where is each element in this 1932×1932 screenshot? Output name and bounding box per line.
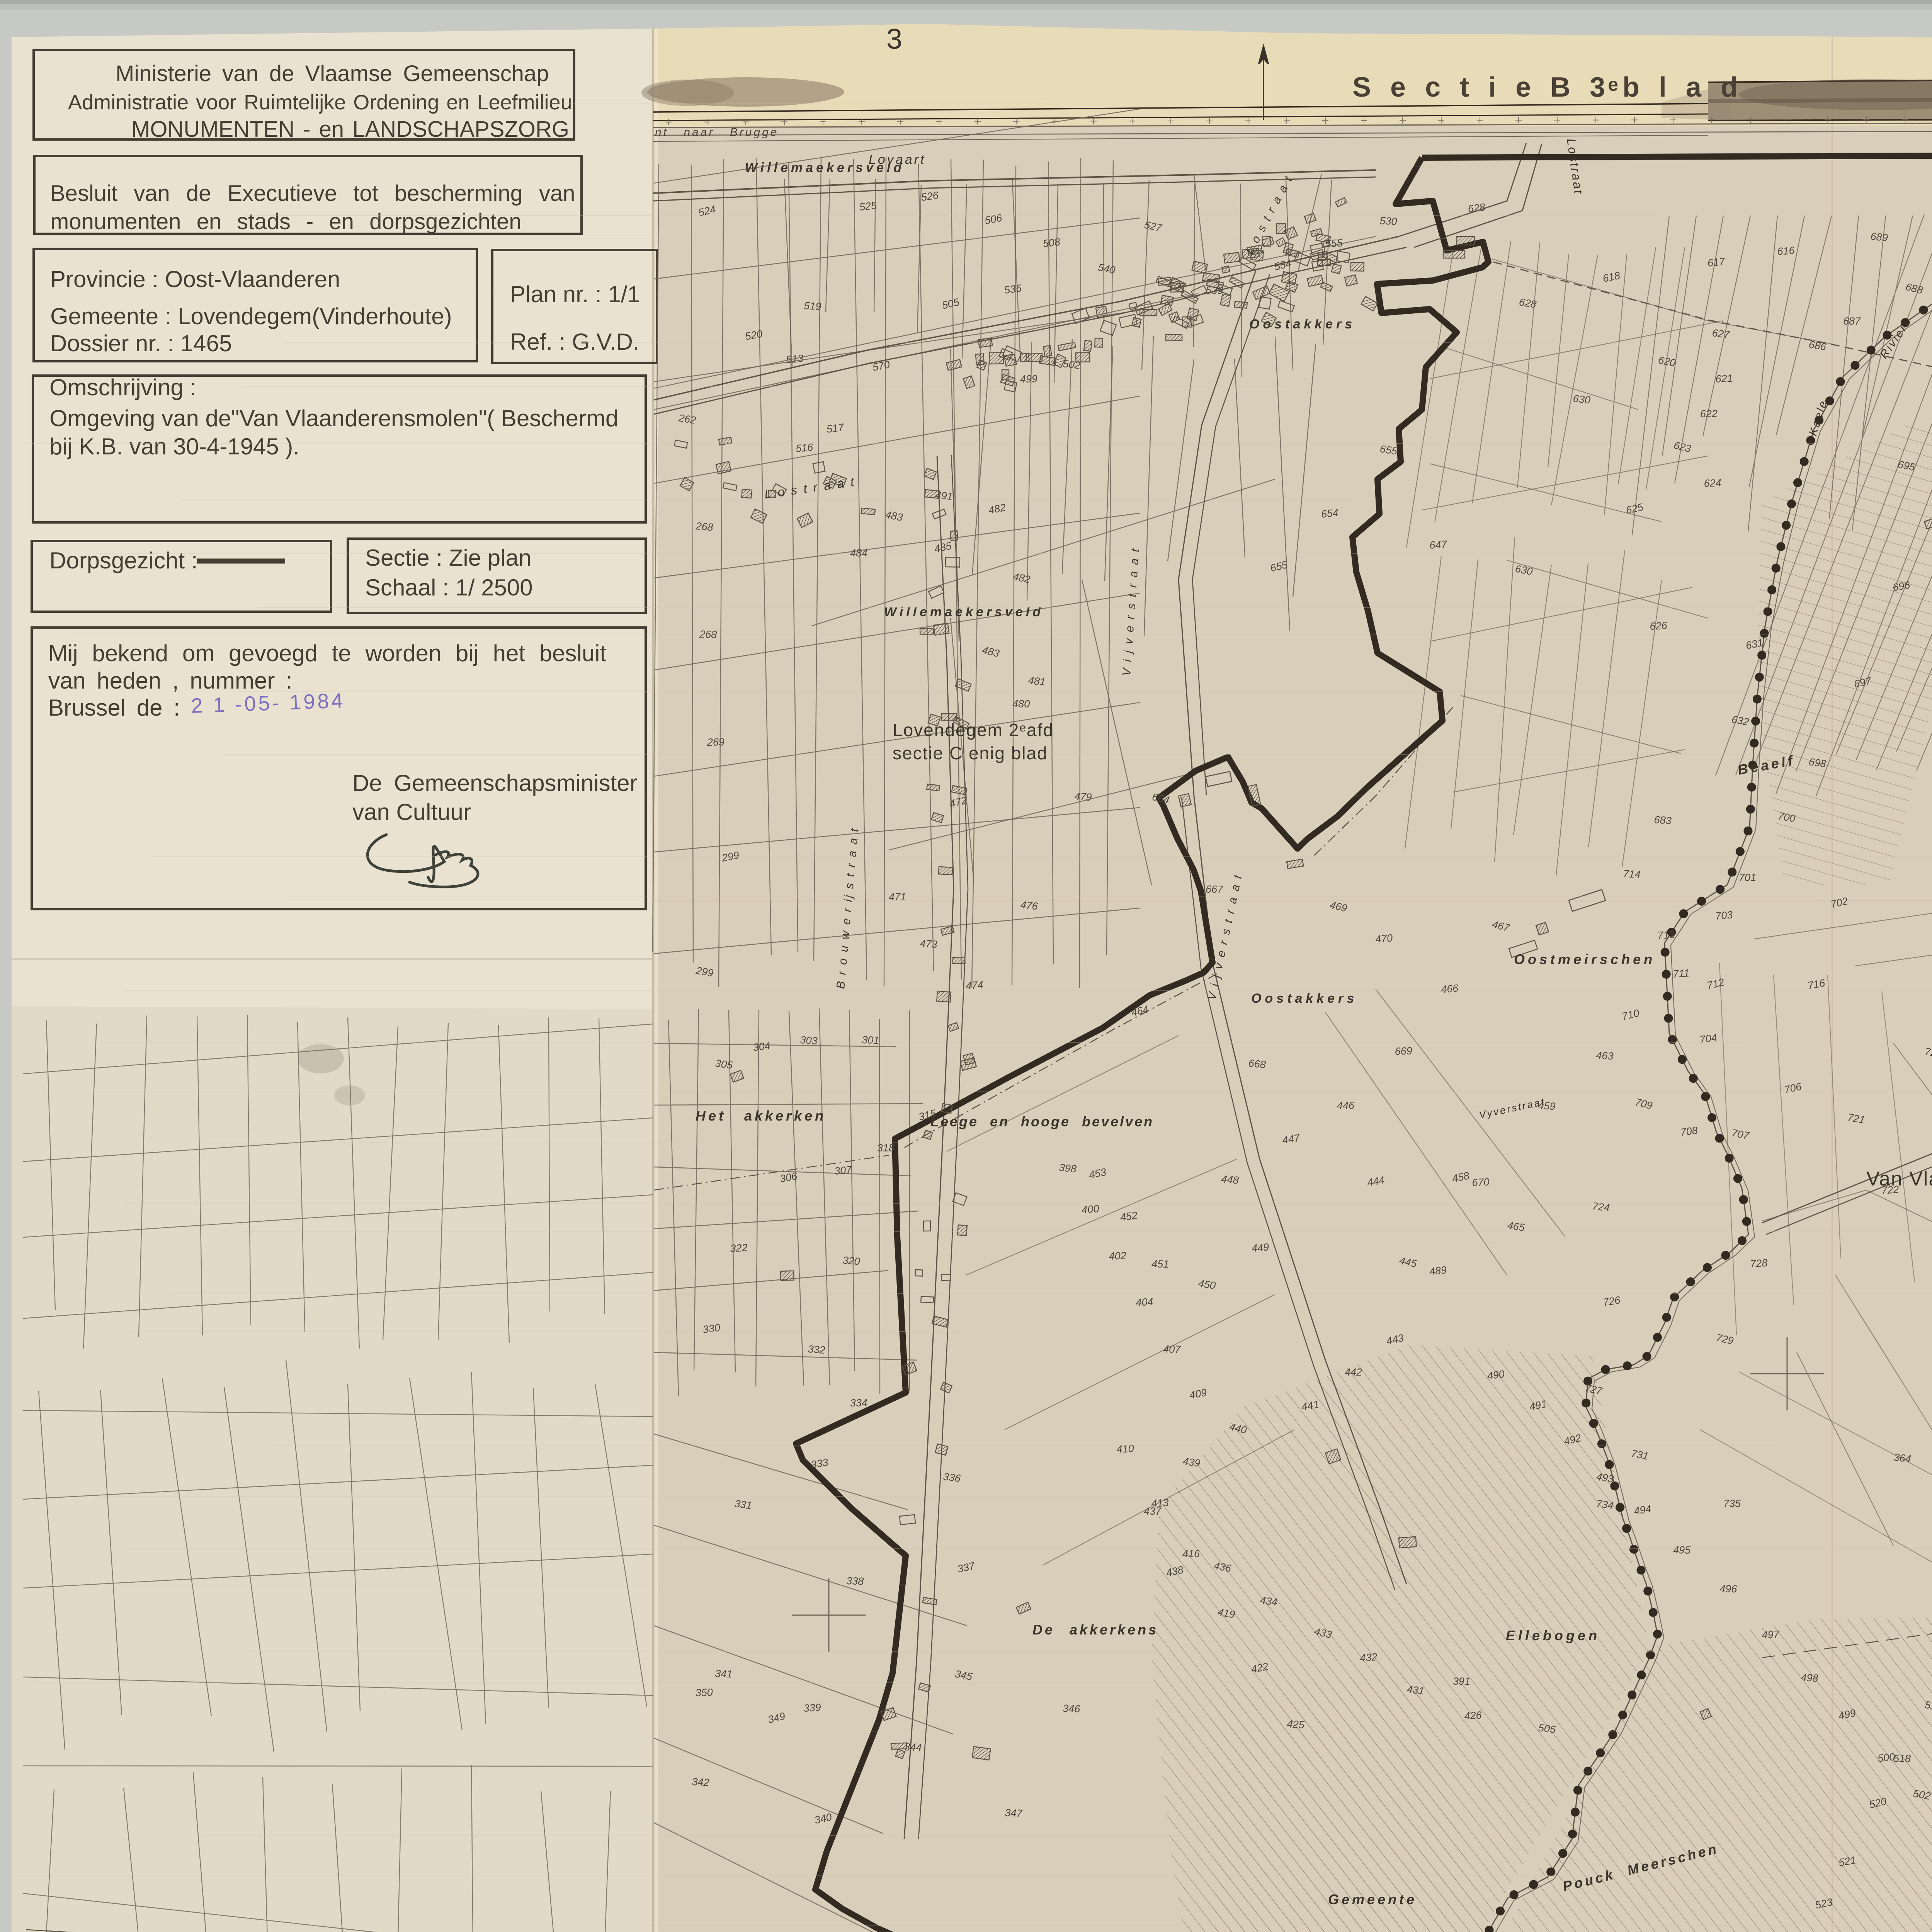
svg-text:439: 439 xyxy=(1182,1455,1201,1469)
svg-text:654: 654 xyxy=(1320,507,1339,520)
svg-text:496: 496 xyxy=(1719,1583,1738,1595)
svg-text:539: 539 xyxy=(1206,284,1223,296)
svg-text:Gemeente : Lovendegem(Vinderho: Gemeente : Lovendegem(Vinderhoute) xyxy=(50,303,452,329)
svg-text:Ministerie van de Vlaamse: Ministerie van de Vlaamse Gemeenschap xyxy=(116,61,549,86)
svg-text:269: 269 xyxy=(707,736,725,748)
svg-text:499: 499 xyxy=(1020,373,1038,385)
svg-text:426: 426 xyxy=(1464,1709,1483,1722)
svg-text:667: 667 xyxy=(1206,883,1224,895)
svg-text:616: 616 xyxy=(1777,245,1795,257)
svg-text:322: 322 xyxy=(730,1242,748,1254)
svg-text:502: 502 xyxy=(1062,358,1081,371)
svg-text:364: 364 xyxy=(1893,1451,1912,1465)
svg-text:442: 442 xyxy=(1345,1366,1362,1378)
svg-text:713: 713 xyxy=(1657,929,1675,941)
svg-text:481: 481 xyxy=(1027,675,1046,688)
svg-text:519: 519 xyxy=(804,300,822,312)
svg-text:495: 495 xyxy=(1673,1544,1691,1556)
svg-text:Omgeving van de"Van Vlaanderen: Omgeving van de"Van Vlaanderensmolen"( B… xyxy=(49,405,618,431)
svg-text:463: 463 xyxy=(1596,1049,1614,1062)
svg-text:344: 344 xyxy=(904,1741,922,1753)
svg-text:479: 479 xyxy=(1074,791,1092,803)
svg-text:724: 724 xyxy=(1592,1200,1610,1214)
svg-text:449: 449 xyxy=(1251,1241,1270,1254)
svg-text:437: 437 xyxy=(1144,1505,1162,1517)
svg-text:402: 402 xyxy=(1109,1250,1126,1262)
svg-text:450: 450 xyxy=(1197,1277,1216,1291)
svg-text:Provincie : Oost-Vlaanderen: Provincie : Oost-Vlaanderen xyxy=(50,266,340,292)
svg-text:669: 669 xyxy=(1395,1045,1412,1057)
svg-text:monumenten en stads - en do: monumenten en stads - en dorpsgezichten xyxy=(50,209,521,234)
svg-text:517: 517 xyxy=(826,422,845,435)
svg-text:307: 307 xyxy=(834,1164,852,1177)
svg-text:626: 626 xyxy=(1650,620,1668,632)
svg-text:305: 305 xyxy=(714,1057,734,1071)
svg-text:Leege en hooge bevelven: Leege en hooge bevelven xyxy=(930,1114,1154,1129)
svg-text:268: 268 xyxy=(695,520,714,533)
svg-text:617: 617 xyxy=(1707,255,1726,269)
svg-text:498: 498 xyxy=(1801,1672,1819,1684)
svg-text:304: 304 xyxy=(752,1040,771,1053)
svg-text:Ellebogen: Ellebogen xyxy=(1506,1628,1600,1643)
svg-text:526: 526 xyxy=(920,189,940,203)
svg-text:Mij bekend om gevoegd te: Mij bekend om gevoegd te worden bij het … xyxy=(48,640,606,666)
svg-text:689: 689 xyxy=(1870,230,1888,244)
svg-text:628: 628 xyxy=(1467,201,1486,215)
svg-text:698: 698 xyxy=(1808,756,1827,770)
svg-text:735: 735 xyxy=(1723,1498,1741,1509)
svg-text:MONUMENTEN - en LANDSCHAPSZOR: MONUMENTEN - en LANDSCHAPSZORG xyxy=(131,117,569,142)
svg-text:530: 530 xyxy=(1379,215,1398,227)
svg-text:687: 687 xyxy=(1843,315,1861,327)
svg-text:bij K.B. van 30-4-1945 ).: bij K.B. van 30-4-1945 ). xyxy=(49,434,299,459)
svg-text:711: 711 xyxy=(1672,967,1690,980)
svg-text:670: 670 xyxy=(1472,1176,1490,1189)
svg-text:448: 448 xyxy=(1221,1173,1239,1186)
svg-text:391: 391 xyxy=(1453,1675,1470,1687)
svg-text:400: 400 xyxy=(1081,1203,1099,1216)
svg-text:404: 404 xyxy=(1136,1296,1154,1308)
svg-text:268: 268 xyxy=(699,628,717,641)
svg-text:513: 513 xyxy=(786,352,804,366)
svg-text:Administratie voor Ruimtelijke: Administratie voor Ruimtelijke Ordening … xyxy=(68,91,572,114)
svg-text:318: 318 xyxy=(877,1142,895,1154)
svg-text:Oostakkers: Oostakkers xyxy=(1249,317,1355,332)
svg-text:500: 500 xyxy=(1877,1751,1895,1764)
svg-text:683: 683 xyxy=(1654,814,1672,827)
svg-text:728: 728 xyxy=(1750,1257,1768,1270)
svg-text:Sectie : Zie plan: Sectie : Zie plan xyxy=(365,545,531,571)
svg-text:332: 332 xyxy=(808,1343,826,1356)
svg-text:van Cultuur: van Cultuur xyxy=(352,799,471,825)
svg-text:703: 703 xyxy=(1715,909,1733,922)
svg-text:Dorpsgezicht :: Dorpsgezicht : xyxy=(49,548,198,573)
svg-text:S e c t i e B 3eb l a d: S e c t i e B 3eb l a d xyxy=(1352,72,1740,103)
svg-text:347: 347 xyxy=(1005,1807,1023,1819)
svg-text:459: 459 xyxy=(1538,1100,1556,1112)
svg-text:447: 447 xyxy=(1282,1132,1301,1146)
svg-text:Willemaekersveld: Willemaekersveld xyxy=(884,605,1044,619)
svg-text:647: 647 xyxy=(1429,539,1448,551)
svg-text:Oostmeirschen: Oostmeirschen xyxy=(1514,951,1655,967)
svg-text:470: 470 xyxy=(1375,932,1393,945)
svg-text:330: 330 xyxy=(702,1322,721,1335)
svg-text:nt naar Brugge: nt naar Brugge xyxy=(655,126,779,139)
svg-text:Besluit van de Executieve: Besluit van de Executieve tot beschermin… xyxy=(50,181,575,206)
svg-text:336: 336 xyxy=(942,1471,961,1484)
svg-text:Willemaekersveld: Willemaekersveld xyxy=(745,160,905,175)
svg-text:Van Vlaanderensmolen: Van Vlaanderensmolen xyxy=(1866,1168,1932,1190)
svg-text:473: 473 xyxy=(920,937,938,950)
svg-text:Schaal : 1/ 2500: Schaal : 1/ 2500 xyxy=(365,575,533,600)
svg-text:sectie C enig blad: sectie C enig blad xyxy=(893,743,1048,763)
svg-text:334: 334 xyxy=(850,1397,868,1409)
svg-text:525: 525 xyxy=(859,199,878,213)
svg-text:425: 425 xyxy=(1287,1718,1305,1731)
svg-text:341: 341 xyxy=(715,1668,733,1680)
svg-text:701: 701 xyxy=(1739,872,1756,883)
svg-text:3: 3 xyxy=(886,23,902,55)
svg-text:624: 624 xyxy=(1704,477,1721,489)
svg-text:476: 476 xyxy=(1020,899,1039,912)
svg-text:Brussel de :: Brussel de : xyxy=(48,695,180,721)
svg-text:431: 431 xyxy=(1406,1683,1425,1697)
svg-text:622: 622 xyxy=(1700,408,1718,420)
svg-text:489: 489 xyxy=(1429,1264,1447,1277)
svg-text:518: 518 xyxy=(1893,1753,1911,1764)
svg-text:350: 350 xyxy=(695,1686,713,1699)
svg-text:668: 668 xyxy=(1248,1057,1266,1071)
svg-text:621: 621 xyxy=(1715,372,1733,385)
svg-text:416: 416 xyxy=(1182,1548,1200,1560)
svg-text:722: 722 xyxy=(1881,1184,1899,1196)
svg-text:505: 505 xyxy=(1537,1722,1556,1735)
svg-text:714: 714 xyxy=(1623,868,1641,880)
svg-text:Ref. : G.V.D.: Ref. : G.V.D. xyxy=(510,329,639,355)
svg-text:704: 704 xyxy=(1699,1032,1718,1046)
svg-text:van heden , nummer :: van heden , nummer : xyxy=(48,668,293,694)
svg-text:497: 497 xyxy=(1762,1628,1780,1641)
svg-text:734: 734 xyxy=(1595,1498,1614,1511)
svg-text:508: 508 xyxy=(1042,236,1061,250)
svg-text:320: 320 xyxy=(842,1254,861,1267)
svg-text:346: 346 xyxy=(1063,1702,1081,1715)
svg-text:Het akkerken: Het akkerken xyxy=(696,1108,826,1124)
svg-text:708: 708 xyxy=(1680,1124,1699,1138)
svg-text:407: 407 xyxy=(1163,1343,1181,1355)
svg-text:398: 398 xyxy=(1058,1162,1077,1175)
svg-text:410: 410 xyxy=(1116,1443,1134,1455)
svg-text:630: 630 xyxy=(1572,393,1591,406)
svg-text:Omschrijving :: Omschrijving : xyxy=(49,374,196,400)
svg-text:432: 432 xyxy=(1359,1651,1378,1664)
svg-text:446: 446 xyxy=(1337,1100,1355,1111)
svg-text:303: 303 xyxy=(800,1034,818,1047)
svg-text:331: 331 xyxy=(734,1498,752,1511)
svg-text:339: 339 xyxy=(803,1702,821,1714)
svg-text:Lovendegem 2eafd: Lovendegem 2eafd xyxy=(893,720,1054,740)
svg-text:Oostakkers: Oostakkers xyxy=(1251,991,1357,1006)
svg-text:491: 491 xyxy=(935,489,953,502)
svg-text:342: 342 xyxy=(692,1776,710,1788)
svg-text:490: 490 xyxy=(1486,1368,1505,1382)
svg-text:451: 451 xyxy=(1151,1258,1169,1270)
svg-text:452: 452 xyxy=(1119,1209,1138,1223)
svg-text:Gemeente: Gemeente xyxy=(1328,1891,1417,1907)
svg-text:434: 434 xyxy=(1259,1594,1278,1608)
svg-text:De akkerkens: De akkerkens xyxy=(1032,1622,1158,1638)
svg-text:627: 627 xyxy=(1711,327,1730,340)
svg-text:466: 466 xyxy=(1440,982,1459,995)
svg-text:474: 474 xyxy=(966,979,984,992)
svg-text:De Gemeenschapsminister: De Gemeenschapsminister xyxy=(352,770,638,796)
svg-text:301: 301 xyxy=(862,1034,879,1046)
svg-text:Dossier nr. : 1465: Dossier nr. : 1465 xyxy=(50,330,232,356)
svg-text:480: 480 xyxy=(1012,698,1030,710)
